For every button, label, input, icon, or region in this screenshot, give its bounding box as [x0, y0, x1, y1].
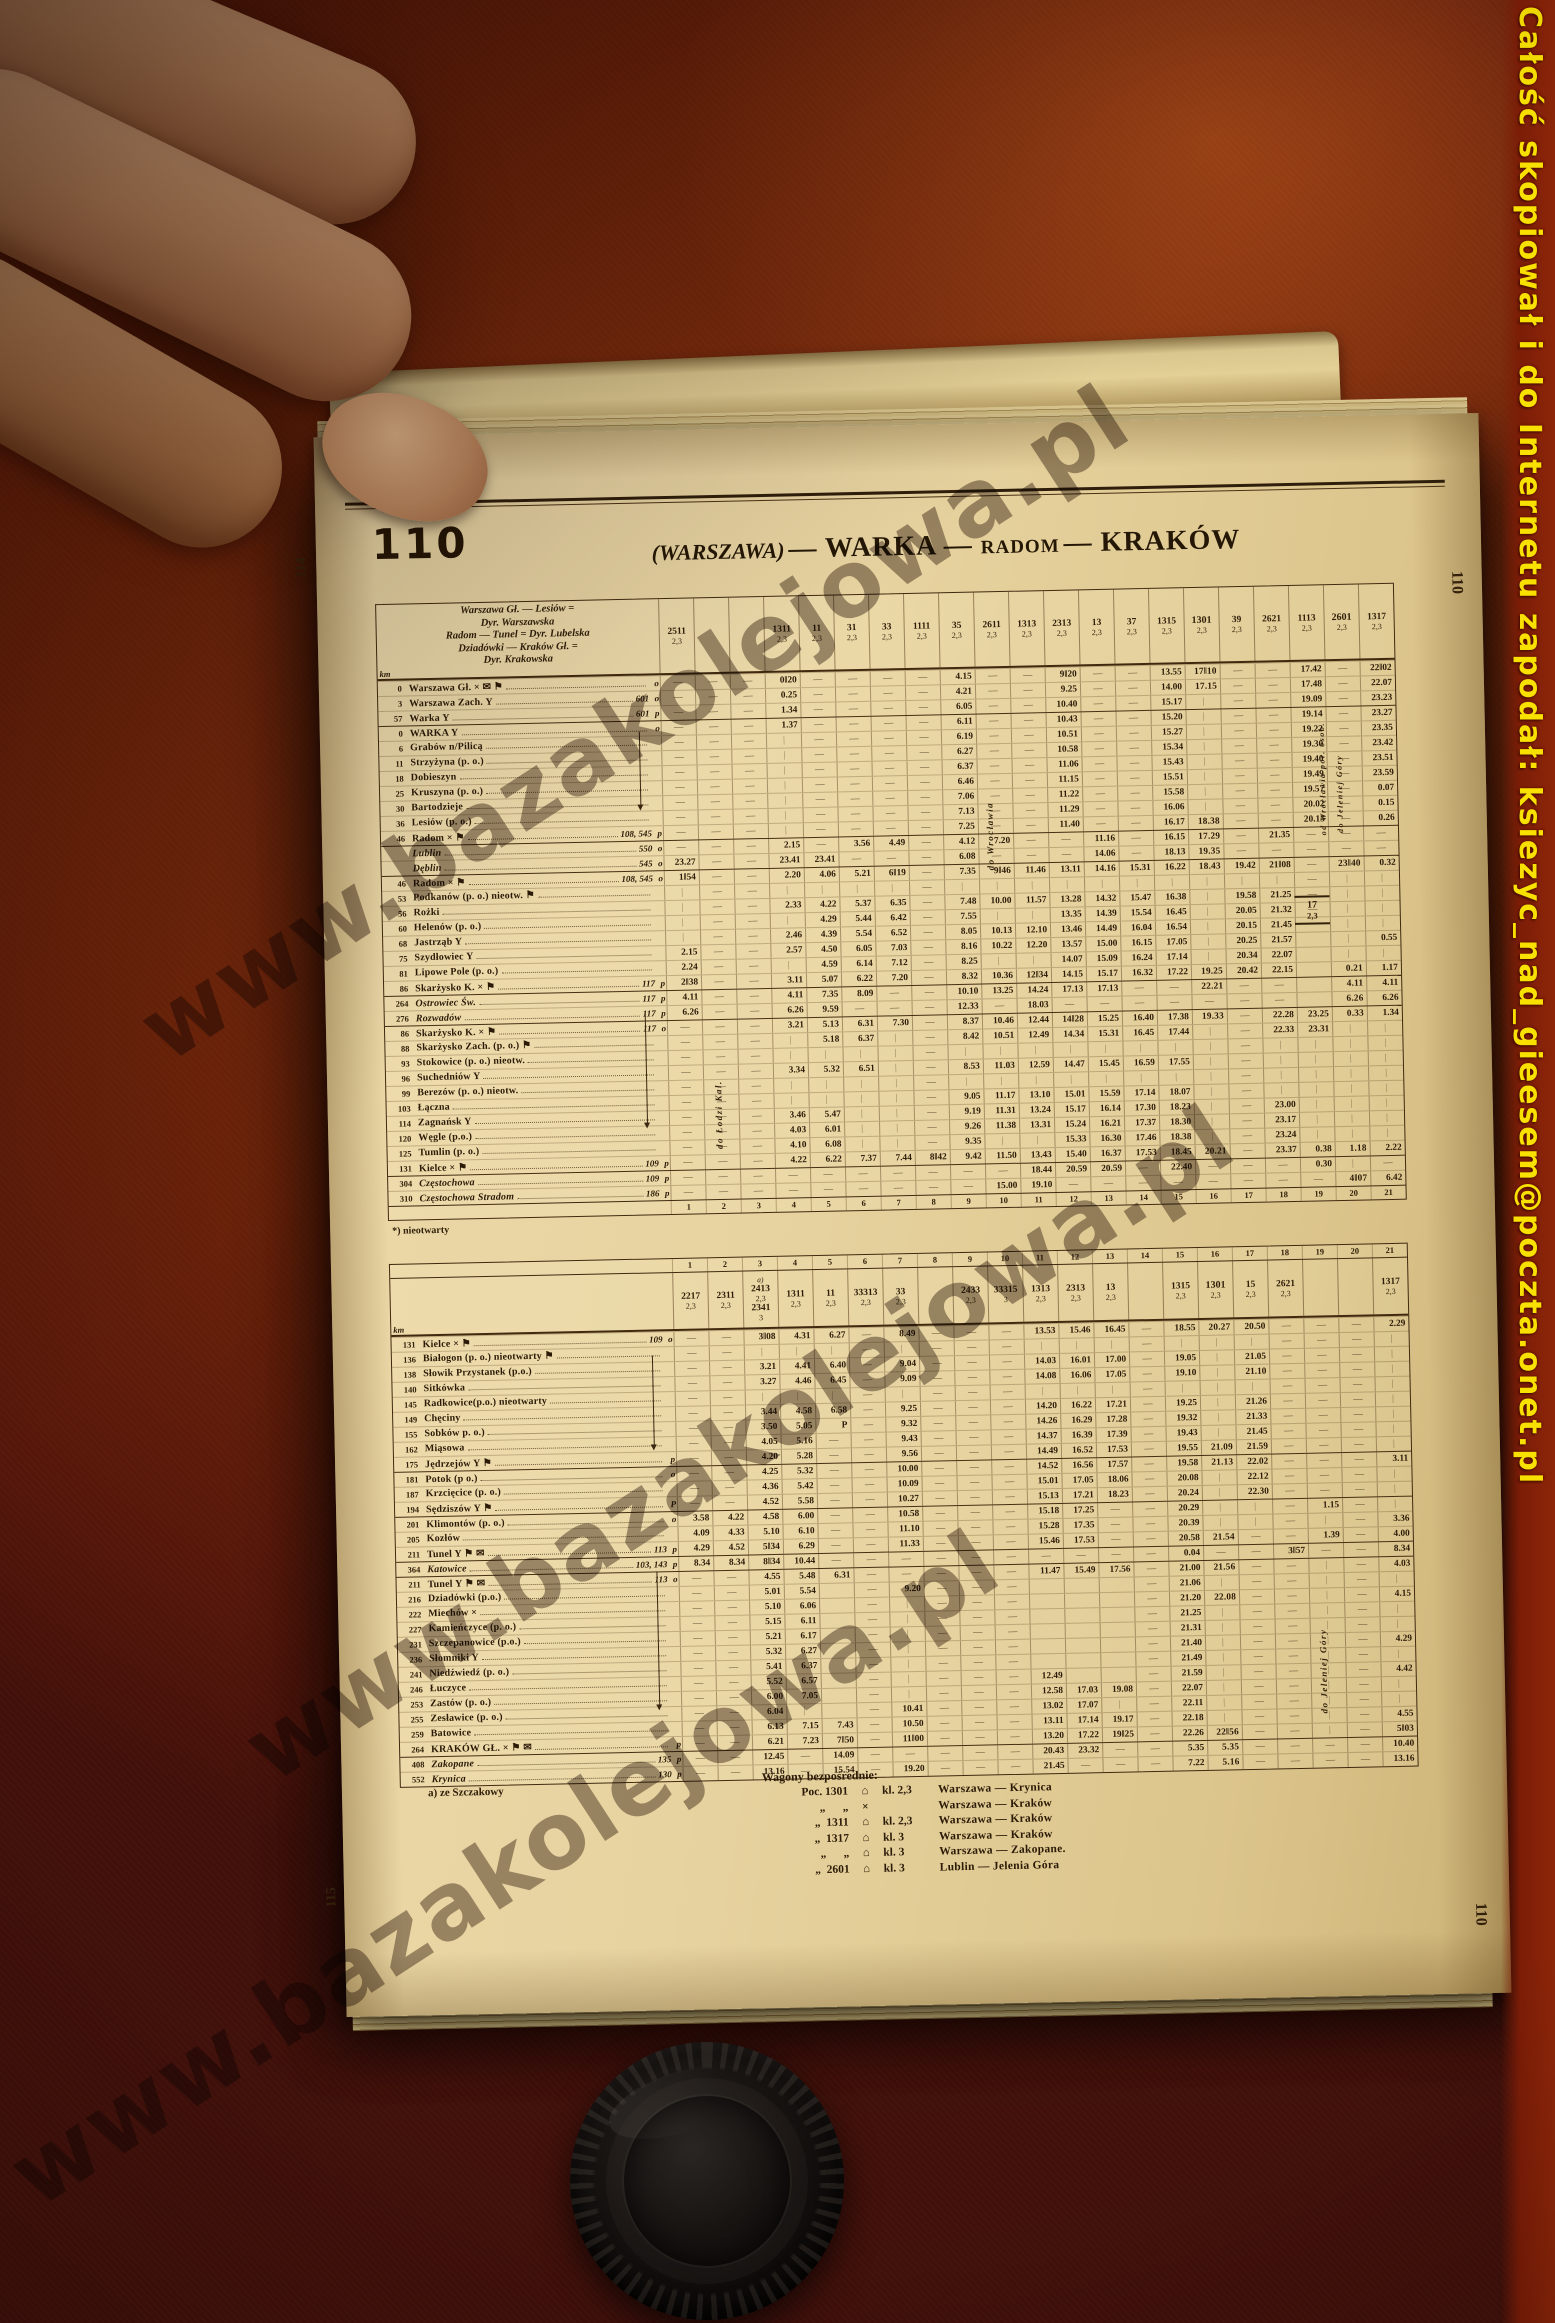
station-km: 86 [384, 981, 410, 996]
train-class: 2,3 [847, 633, 857, 642]
time-cell: 14.26 [1025, 1414, 1060, 1429]
column-number: 9 [951, 1194, 986, 1208]
time-cell: — [1228, 1084, 1263, 1099]
time-cell: 5‖03 [1382, 1722, 1417, 1737]
time-cell: 13.31 [1019, 1118, 1054, 1133]
time-cell: — [836, 747, 871, 762]
time-cell: 22.26 [1172, 1726, 1207, 1741]
time-cell: — [1115, 681, 1150, 696]
time-cell: — [836, 717, 871, 732]
time-cell: — [800, 703, 835, 718]
time-cell: 19.25 [1191, 964, 1226, 979]
time-cell: 8.05 [945, 925, 980, 940]
column-number: 16 [1197, 1247, 1232, 1261]
time-cell: — [837, 792, 872, 807]
train-number: 1313 [1031, 1284, 1050, 1294]
time-cell: | [1087, 1042, 1122, 1057]
arrival-departure-mark: P [666, 1497, 677, 1511]
station-km: 227 [397, 1622, 423, 1637]
time-cell: 15.25 [1087, 1012, 1122, 1027]
time-cell: | [1154, 875, 1189, 890]
time-cell: — [1261, 978, 1296, 993]
time-cell: | [877, 1031, 912, 1046]
time-cell: 6.58 [815, 1403, 850, 1418]
time-cell: 20.02 [1292, 797, 1327, 812]
time-cell: — [1135, 1637, 1170, 1652]
time-cell: 13.11 [1031, 1714, 1066, 1729]
time-cell: — [912, 1000, 947, 1015]
time-cell: | [767, 778, 802, 793]
time-cell: 4.36 [747, 1480, 782, 1495]
time-cell: 4.46 [779, 1374, 814, 1389]
station-name: Niedźwiedź (p. o.) [429, 1666, 509, 1682]
time-cell: 5.35 [1172, 1741, 1207, 1756]
time-cell: — [731, 734, 766, 749]
time-cell: 3.46 [774, 1108, 809, 1123]
time-cell: — [678, 1571, 713, 1586]
time-cell: 21.56 [1203, 1560, 1238, 1575]
line-reference: 108, 545 [620, 826, 652, 841]
time-cell: — [739, 1124, 774, 1139]
time-cell: 14.39 [1085, 907, 1120, 922]
time-cell: 10.41 [891, 1702, 926, 1717]
time-cell: | [884, 1342, 919, 1357]
time-cell: 13.16 [1382, 1752, 1417, 1767]
time-cell: — [736, 989, 771, 1004]
time-cell: 3.50 [745, 1420, 780, 1435]
time-cell: | [779, 1344, 814, 1359]
time-cell: — [925, 1656, 960, 1671]
time-cell: | [1164, 1336, 1199, 1351]
time-cell: — [835, 672, 870, 687]
time-cell: — [740, 1169, 775, 1184]
time-cell: | [1024, 1339, 1059, 1354]
station-km: 264 [400, 1742, 426, 1757]
time-cell: — [854, 1598, 889, 1613]
time-cell: 7.37 [845, 1152, 880, 1167]
leader-dots [488, 1430, 662, 1435]
time-cell: — [802, 792, 837, 807]
time-cell: — [1227, 1009, 1262, 1024]
time-cell: — [731, 719, 766, 734]
time-cell: — [1137, 1727, 1172, 1742]
time-cell: 6.42 [1370, 1171, 1405, 1186]
time-cell: 4.15 [1379, 1587, 1414, 1602]
time-cell: 6.22 [810, 1152, 845, 1167]
time-cell: — [730, 704, 765, 719]
time-cell: | [1365, 916, 1400, 931]
time-cell: 6.00 [782, 1509, 817, 1524]
time-cell: 14.49 [1085, 922, 1120, 937]
time-cell: | [766, 748, 801, 763]
time-cell: — [696, 750, 731, 765]
time-cell: — [955, 1415, 990, 1430]
time-cell: — [888, 1552, 923, 1567]
time-cell: 8‖34 [748, 1555, 783, 1570]
time-cell: — [1117, 801, 1152, 816]
time-cell: — [1128, 1322, 1163, 1337]
time-cell: 19.58 [1224, 889, 1259, 904]
time-cell: — [668, 1065, 703, 1080]
time-cell: — [1326, 737, 1361, 752]
station-name: Radom × ⚑ [412, 831, 465, 845]
time-cell: — [837, 777, 872, 792]
station-km: 255 [399, 1712, 425, 1727]
arrival-departure-mark: o [662, 1332, 673, 1346]
station-name: Kielce × ⚑ [419, 1161, 468, 1175]
time-cell: | [1374, 1347, 1409, 1362]
time-cell: 21.09 [1201, 1440, 1236, 1455]
train-number-column: 152,3 [1232, 1261, 1268, 1318]
leader-dots [488, 1582, 651, 1586]
column-number: 2 [706, 1200, 741, 1214]
time-cell: — [924, 1596, 959, 1611]
time-cell: 7.13 [942, 805, 977, 820]
time-cell: — [1081, 742, 1116, 757]
time-cell: 18.44 [1020, 1163, 1055, 1178]
time-cell: 23.27 [1360, 706, 1395, 721]
time-cell: 10.00 [979, 894, 1014, 909]
time-cell: — [1011, 728, 1046, 743]
time-cell: 13.20 [1032, 1729, 1067, 1744]
time-cell: 11.03 [983, 1059, 1018, 1074]
time-cell: | [1189, 874, 1224, 889]
time-cell: — [989, 1340, 1024, 1355]
time-cell: 7.35 [806, 987, 841, 1002]
time-cell: 15.27 [1151, 725, 1186, 740]
time-cell: 22.12 [1236, 1470, 1271, 1485]
time-cell: 21.57 [1260, 933, 1295, 948]
time-cell: — [1340, 1392, 1375, 1407]
train-number-column: 26012,3 [1323, 585, 1360, 660]
time-cell: 4.58 [780, 1404, 815, 1419]
time-cell: — [962, 1715, 997, 1730]
station-km: 120 [387, 1131, 413, 1146]
time-cell: | [767, 793, 802, 808]
time-cell: | [1333, 1051, 1368, 1066]
time-cell: — [1118, 846, 1153, 861]
time-cell: — [676, 1466, 711, 1481]
time-cell: 3.56 [838, 837, 873, 852]
time-cell: — [674, 1376, 709, 1391]
time-cell: — [1345, 1647, 1380, 1662]
timetable-book: 114 110 115 110 110 (WARSZAWA) — WARKA —… [314, 413, 1512, 2017]
time-cell: — [921, 1476, 956, 1491]
station-km: 30 [380, 802, 406, 817]
time-cell: — [663, 825, 698, 840]
time-cell: | [889, 1612, 924, 1627]
time-cell: 7.48 [944, 895, 979, 910]
time-cell: — [1327, 781, 1362, 796]
time-cell: | [1192, 1039, 1227, 1054]
time-cell: 6.51 [843, 1062, 878, 1077]
time-cell: — [1345, 1617, 1380, 1632]
time-cell: — [873, 821, 908, 836]
leader-dots [504, 1595, 665, 1599]
time-cell: — [712, 1496, 747, 1511]
time-cell: — [914, 1135, 949, 1150]
time-cell: | [1374, 1362, 1409, 1377]
time-cell: — [852, 1523, 887, 1538]
time-cell: — [913, 1060, 948, 1075]
time-cell: 21.45 [1260, 918, 1295, 933]
time-cell: | [1190, 904, 1225, 919]
time-cell: — [1339, 1347, 1374, 1362]
time-cell: — [926, 1671, 961, 1686]
time-cell: — [1272, 1484, 1307, 1499]
time-cell: | [1204, 1605, 1239, 1620]
time-cell: — [713, 1571, 748, 1586]
time-cell: | [1333, 1081, 1368, 1096]
time-cell: 6.46 [942, 775, 977, 790]
time-cell: — [701, 975, 736, 990]
time-cell: — [1277, 1724, 1312, 1739]
time-cell: — [922, 1491, 957, 1506]
train-number-column: 13012,3 [1183, 587, 1220, 662]
train-class: 2,3 [1036, 1294, 1046, 1303]
time-cell: — [681, 1676, 716, 1691]
time-cell: — [1238, 1530, 1273, 1545]
leader-dots [474, 1342, 646, 1347]
station-name: Dobieszyn [411, 770, 457, 785]
time-cell: | [1084, 877, 1119, 892]
time-cell: 4.31 [778, 1329, 813, 1344]
time-cell: 19.57 [1292, 782, 1327, 797]
time-cell: | [1332, 1036, 1367, 1051]
time-cell: — [662, 765, 697, 780]
time-cell [1100, 1622, 1135, 1637]
station-name: Krynica [432, 1772, 466, 1786]
time-cell: 14.06 [1083, 847, 1118, 862]
time-cell: — [1222, 769, 1257, 784]
time-cell: — [853, 1538, 888, 1553]
time-cell: 16.06 [1059, 1368, 1094, 1383]
time-cell: 19.10 [1164, 1366, 1199, 1381]
time-cell [820, 1628, 855, 1643]
train-class: 2,3 [1337, 622, 1347, 631]
time-cell: — [1012, 803, 1047, 818]
time-cell: — [1011, 713, 1046, 728]
train-class: 2,3 [987, 630, 997, 639]
train-number-column: 13132,3 [1022, 1265, 1058, 1322]
time-cell: — [992, 1490, 1027, 1505]
time-cell: — [1242, 1739, 1277, 1754]
time-cell: 9.59 [807, 1002, 842, 1017]
time-cell: 22.15 [1261, 963, 1296, 978]
time-cell: — [1133, 1562, 1168, 1577]
time-cell: | [1368, 1051, 1403, 1066]
time-cell: — [716, 1675, 751, 1690]
time-cell: 22.07 [1171, 1681, 1206, 1696]
time-cell: — [703, 1050, 738, 1065]
time-cell: | [842, 1047, 877, 1062]
time-cell: | [768, 823, 803, 838]
time-cell: — [732, 809, 767, 824]
time-cell: 19.22 [1291, 722, 1326, 737]
time-cell: — [848, 1328, 883, 1343]
station-km: 216 [397, 1592, 423, 1607]
time-cell: 20.39 [1167, 1516, 1202, 1531]
time-cell: 4.11 [666, 990, 701, 1005]
time-cell: — [717, 1735, 752, 1750]
time-cell: — [1363, 841, 1398, 856]
time-cell: — [990, 1385, 1025, 1400]
leader-dots [468, 1385, 660, 1390]
time-cell: — [1294, 872, 1329, 887]
arrival-departure-mark: p [667, 1557, 678, 1571]
time-cell: 14.52 [1026, 1459, 1061, 1474]
time-cell: 12.49 [1017, 1028, 1052, 1043]
time-cell: | [1235, 1380, 1270, 1395]
time-cell: | [1187, 769, 1222, 784]
time-cell: — [995, 1640, 1030, 1655]
time-cell: — [695, 690, 730, 705]
time-cell: 5.05 [780, 1419, 815, 1434]
time-cell: 15.34 [1151, 740, 1186, 755]
time-cell: 0‖20 [765, 673, 800, 688]
leader-dots [453, 716, 633, 721]
time-cell: 7.15 [787, 1719, 822, 1734]
time-cell: | [1016, 953, 1051, 968]
column-number: 20 [1337, 1244, 1372, 1258]
time-cell: | [1329, 886, 1364, 901]
time-cell: — [922, 1521, 957, 1536]
time-cell: — [1304, 1363, 1339, 1378]
time-cell: 4.22 [804, 897, 839, 912]
time-cell: — [1340, 1377, 1375, 1392]
footnote-a: a) ze Szczakowy [428, 1786, 504, 1800]
station-km: 310 [388, 1191, 414, 1206]
time-cell [1029, 1579, 1064, 1594]
time-cell: 21.13 [1201, 1455, 1236, 1470]
time-cell: 3.34 [773, 1063, 808, 1078]
time-cell: | [890, 1627, 925, 1642]
train-number: 15 [1246, 1279, 1256, 1289]
time-cell: — [1343, 1542, 1378, 1557]
time-cell: — [738, 1064, 773, 1079]
time-cell: — [849, 1343, 884, 1358]
time-cell: | [1311, 1693, 1346, 1708]
time-cell: — [994, 1610, 1029, 1625]
train-number-column: 13012,3 [1197, 1261, 1233, 1318]
time-cell: 9‖20 [1045, 667, 1080, 682]
leader-dots [465, 939, 651, 944]
time-cell: 11.17 [983, 1089, 1018, 1104]
coach-icon: × [848, 1799, 882, 1815]
time-cell: 16.52 [1061, 1443, 1096, 1458]
time-cell: 17.07 [1066, 1698, 1101, 1713]
time-cell: | [877, 1046, 912, 1061]
station-name: Tumlin (p. o.) [418, 1145, 479, 1160]
time-cell: — [740, 1184, 775, 1199]
station-km: 246 [399, 1682, 425, 1697]
time-cell: 15.01 [1053, 1087, 1088, 1102]
time-cell: — [1339, 1332, 1374, 1347]
time-cell: 21.45 [1235, 1425, 1270, 1440]
leader-dots [464, 1415, 662, 1420]
time-cell: — [803, 837, 838, 852]
leader-dots [488, 1552, 651, 1556]
time-cell: 18.45 [1160, 1145, 1195, 1160]
time-cell: 4.11 [1331, 976, 1366, 991]
time-cell: | [770, 913, 805, 928]
time-cell: — [906, 760, 941, 775]
time-cell: 12.45 [752, 1750, 787, 1765]
time-cell: — [1275, 1649, 1310, 1664]
time-cell: 4.11 [1366, 976, 1401, 991]
leader-dots [506, 685, 646, 689]
time-cell: 11.46 [1014, 863, 1049, 878]
station-km: 149 [393, 1412, 419, 1427]
station-name: Kamieńczyce (p. o.) [428, 1620, 516, 1636]
time-cell: 6.27 [941, 745, 976, 760]
time-cell: — [1220, 709, 1255, 724]
time-cell: 14.16 [1084, 862, 1119, 877]
time-cell: — [702, 1035, 737, 1050]
time-cell: — [921, 1431, 956, 1446]
leader-dots [475, 819, 649, 824]
time-cell: — [1116, 756, 1151, 771]
leader-dots [512, 1670, 666, 1674]
time-cell: — [1230, 1174, 1265, 1189]
time-cell: 5.10 [747, 1525, 782, 1540]
time-cell: 1.34 [1367, 1006, 1402, 1021]
time-cell: 16.30 [1089, 1132, 1124, 1147]
time-cell: 23.00 [1264, 1098, 1299, 1113]
time-cell: — [662, 810, 697, 825]
time-cell: 17.22 [1067, 1728, 1102, 1743]
time-cell: — [992, 1520, 1027, 1535]
time-cell: | [1186, 739, 1221, 754]
time-cell: 15.17 [1086, 967, 1121, 982]
time-cell: — [924, 1581, 959, 1596]
arrival-departure-mark: o [652, 856, 663, 870]
time-cell: 2.24 [666, 960, 701, 975]
time-cell: — [1276, 1709, 1311, 1724]
arrival-departure-mark: p [659, 1171, 670, 1185]
time-cell: 9.25 [885, 1402, 920, 1417]
time-cell: | [745, 1390, 780, 1405]
time-cell: 8.42 [947, 1030, 982, 1045]
time-cell: — [662, 780, 697, 795]
time-cell: — [911, 955, 946, 970]
time-cell: 14.07 [1051, 952, 1086, 967]
column-number: 8 [917, 1253, 952, 1267]
station-name: Helenów (p. o.) [414, 920, 482, 935]
time-cell: 18.03 [1016, 998, 1051, 1013]
time-cell: 5.16 [1207, 1755, 1242, 1770]
train-class: 2,3 [791, 1299, 801, 1308]
time-cell: 20.50 [1233, 1320, 1268, 1335]
time-cell: 16.38 [1154, 890, 1189, 905]
time-cell: 16.39 [1061, 1428, 1096, 1443]
time-cell: — [962, 1730, 997, 1745]
time-cell: — [714, 1601, 749, 1616]
time-cell: | [1330, 916, 1365, 931]
column-number: 21 [1371, 1186, 1406, 1200]
leader-dots [476, 954, 651, 959]
time-cell: — [988, 1325, 1023, 1340]
time-cell: — [985, 1164, 1020, 1179]
time-cell: | [807, 1047, 842, 1062]
time-cell: 22.33 [1262, 1023, 1297, 1038]
time-cell: — [1137, 1757, 1172, 1772]
time-cell: | [1014, 878, 1049, 893]
time-cell: 4.22 [775, 1153, 810, 1168]
time-cell: — [1239, 1590, 1274, 1605]
time-cell: — [1048, 832, 1083, 847]
column-number: 19 [1301, 1187, 1336, 1201]
